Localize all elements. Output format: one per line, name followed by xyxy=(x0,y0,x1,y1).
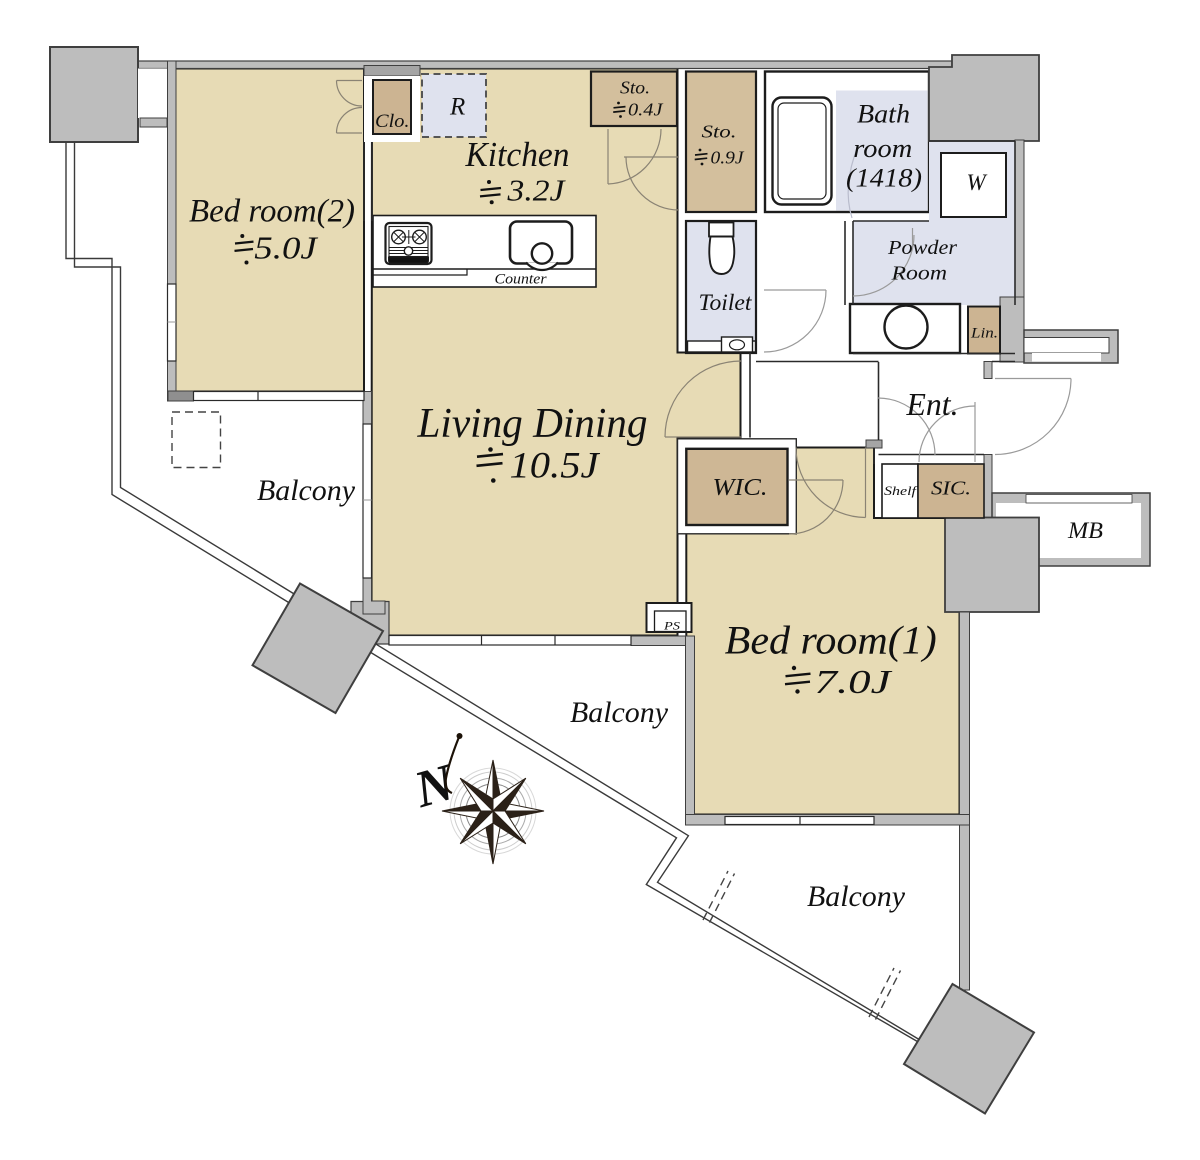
svg-text:7.0J: 7.0J xyxy=(815,664,894,701)
svg-text:Powder: Powder xyxy=(887,237,958,259)
svg-text:PS: PS xyxy=(663,619,680,633)
svg-text:Bed room(1): Bed room(1) xyxy=(725,618,937,663)
svg-text:Bath: Bath xyxy=(857,100,910,129)
svg-text:Balcony: Balcony xyxy=(807,880,906,913)
svg-text:Clo.: Clo. xyxy=(375,111,410,132)
svg-text:Ent.: Ent. xyxy=(906,386,959,422)
svg-text:3.2J: 3.2J xyxy=(506,173,565,208)
svg-text:Balcony: Balcony xyxy=(570,696,669,729)
svg-text:Sto.: Sto. xyxy=(702,122,737,142)
svg-text:Living Dining: Living Dining xyxy=(417,401,648,447)
svg-text:SIC.: SIC. xyxy=(931,478,971,500)
svg-text:(1418): (1418) xyxy=(846,164,922,193)
svg-text:Room: Room xyxy=(890,263,947,285)
svg-text:Counter: Counter xyxy=(495,272,547,288)
svg-text:0.4J: 0.4J xyxy=(628,100,664,120)
svg-text:Kitchen: Kitchen xyxy=(465,135,570,174)
svg-text:10.5J: 10.5J xyxy=(510,446,601,487)
svg-text:Sto.: Sto. xyxy=(620,78,650,98)
svg-text:Toilet: Toilet xyxy=(699,290,753,315)
svg-text:Lin.: Lin. xyxy=(970,326,998,342)
svg-text:Balcony: Balcony xyxy=(257,474,356,507)
svg-text:MB: MB xyxy=(1067,518,1103,543)
svg-text:W: W xyxy=(967,170,988,195)
svg-text:Bed room(2): Bed room(2) xyxy=(189,194,355,230)
svg-text:R: R xyxy=(449,94,465,121)
svg-text:5.0J: 5.0J xyxy=(254,230,319,266)
svg-text:room: room xyxy=(853,134,912,163)
svg-text:WIC.: WIC. xyxy=(713,475,768,501)
svg-text:0.9J: 0.9J xyxy=(711,148,745,168)
svg-text:Shelf: Shelf xyxy=(884,484,918,498)
